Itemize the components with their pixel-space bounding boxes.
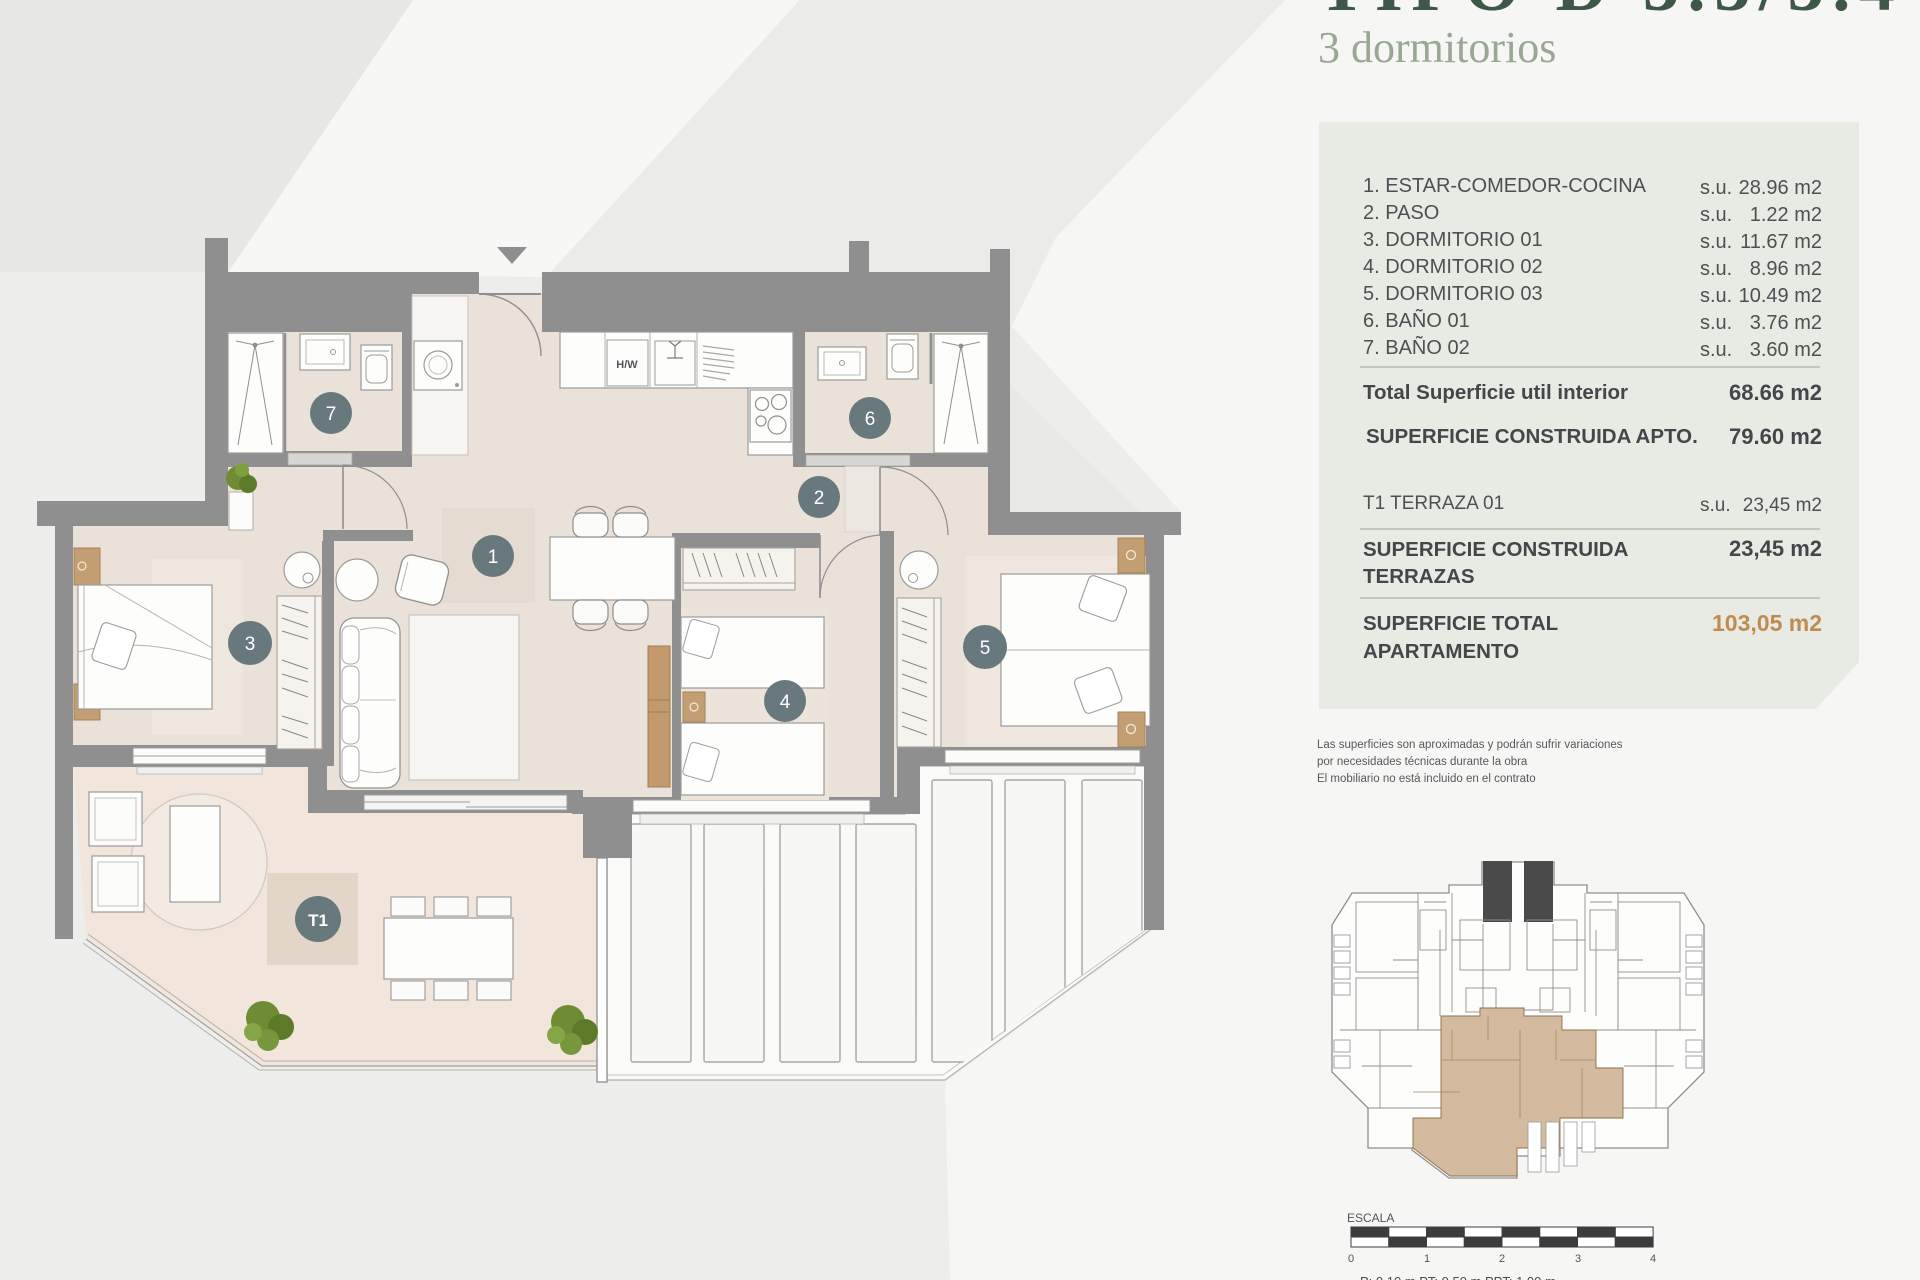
- svg-text:7. BAÑO 02: 7. BAÑO 02: [1363, 335, 1470, 359]
- svg-text:3: 3: [1575, 1253, 1581, 1265]
- svg-text:8.96 m2: 8.96 m2: [1750, 258, 1822, 280]
- svg-text:4: 4: [1650, 1253, 1656, 1265]
- svg-text:SUPERFICIE CONSTRUIDA: SUPERFICIE CONSTRUIDA: [1363, 538, 1629, 561]
- svg-text:4: 4: [780, 692, 791, 713]
- svg-text:s.u.: s.u.: [1700, 177, 1732, 199]
- svg-text:1: 1: [488, 547, 499, 568]
- svg-text:por necesidades técnicas duran: por necesidades técnicas durante la obra: [1317, 756, 1528, 768]
- svg-text:s.u.: s.u.: [1700, 231, 1732, 253]
- svg-text:3. DORMITORIO 01: 3. DORMITORIO 01: [1363, 229, 1543, 251]
- svg-text:ESCALA: ESCALA: [1347, 1211, 1394, 1225]
- svg-text:4. DORMITORIO 02: 4. DORMITORIO 02: [1363, 256, 1543, 278]
- svg-text:3.60 m2: 3.60 m2: [1750, 339, 1822, 361]
- svg-text:2. PASO: 2. PASO: [1363, 202, 1439, 224]
- svg-text:6: 6: [865, 409, 876, 430]
- svg-text:T1 TERRAZA 01: T1 TERRAZA 01: [1363, 493, 1504, 514]
- svg-text:s.u.: s.u.: [1700, 204, 1732, 226]
- svg-text:T1: T1: [308, 911, 328, 930]
- svg-text:2: 2: [814, 488, 825, 509]
- svg-text:SUPERFICIE CONSTRUIDA APTO.: SUPERFICIE CONSTRUIDA APTO.: [1366, 425, 1698, 448]
- svg-text:APARTAMENTO: APARTAMENTO: [1363, 640, 1519, 663]
- svg-text:7: 7: [326, 404, 337, 425]
- svg-text:s.u.: s.u.: [1700, 258, 1732, 280]
- svg-text:El mobiliario no está incluido: El mobiliario no está incluido en el con…: [1317, 773, 1536, 785]
- svg-text:2: 2: [1499, 1253, 1505, 1265]
- svg-text:Total Superficie util interior: Total Superficie util interior: [1363, 381, 1628, 404]
- svg-text:0: 0: [1348, 1253, 1354, 1265]
- svg-text:68.66 m2: 68.66 m2: [1729, 380, 1822, 405]
- svg-text:s.u.: s.u.: [1700, 285, 1732, 307]
- svg-text:5: 5: [980, 638, 991, 659]
- svg-text:s.u.: s.u.: [1700, 339, 1732, 361]
- svg-text:3 dormitorios: 3 dormitorios: [1318, 23, 1556, 72]
- svg-text:1: 1: [1424, 1253, 1430, 1265]
- svg-text:H/W: H/W: [616, 359, 638, 371]
- svg-text:79.60 m2: 79.60 m2: [1729, 424, 1822, 449]
- svg-text:SUPERFICIE TOTAL: SUPERFICIE TOTAL: [1363, 612, 1558, 635]
- svg-text:103,05 m2: 103,05 m2: [1712, 610, 1822, 636]
- svg-text:s.u.: s.u.: [1700, 495, 1731, 516]
- svg-text:23,45 m2: 23,45 m2: [1729, 536, 1822, 561]
- svg-text:s.u.: s.u.: [1700, 312, 1732, 334]
- svg-text:10.49 m2: 10.49 m2: [1739, 285, 1822, 307]
- svg-text:TERRAZAS: TERRAZAS: [1363, 565, 1475, 588]
- svg-text:5. DORMITORIO 03: 5. DORMITORIO 03: [1363, 283, 1543, 305]
- svg-text:1. ESTAR-COMEDOR-COCINA: 1. ESTAR-COMEDOR-COCINA: [1363, 175, 1647, 197]
- svg-text:3.76 m2: 3.76 m2: [1750, 312, 1822, 334]
- svg-text:6. BAÑO 01: 6. BAÑO 01: [1363, 308, 1470, 332]
- svg-text:28.96 m2: 28.96 m2: [1739, 177, 1822, 199]
- svg-text:11.67 m2: 11.67 m2: [1740, 231, 1822, 253]
- svg-text:23,45 m2: 23,45 m2: [1743, 495, 1822, 516]
- svg-text:1.22 m2: 1.22 m2: [1750, 204, 1822, 226]
- svg-text:P: 0,10 m PT: 0,50 m: P: 0,10 m PT: 0,50 m PPT: 1,00 m: [1360, 1274, 1556, 1280]
- svg-text:Las superficies son aproximada: Las superficies son aproximadas y podrán…: [1317, 739, 1623, 751]
- svg-text:3: 3: [245, 634, 256, 655]
